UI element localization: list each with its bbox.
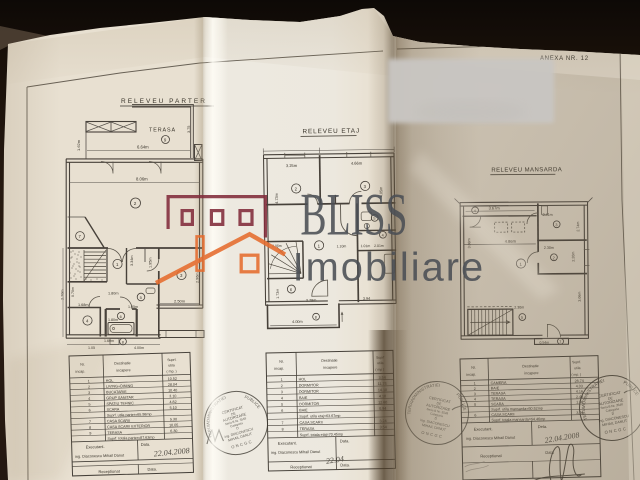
- svg-text:2: 2: [281, 384, 283, 388]
- svg-text:Data.: Data.: [340, 438, 350, 443]
- svg-text:3.34m: 3.34m: [130, 255, 134, 266]
- svg-text:5: 5: [281, 403, 283, 407]
- svg-text:Executant.: Executant.: [86, 444, 105, 450]
- svg-text:DORMITOR: DORMITOR: [299, 402, 319, 406]
- svg-text:10.05: 10.05: [169, 423, 178, 427]
- svg-text:0.70m: 0.70m: [71, 287, 75, 297]
- svg-text:LIVING+DINING: LIVING+DINING: [106, 384, 133, 389]
- svg-text:4: 4: [281, 396, 283, 400]
- svg-text:8: 8: [282, 427, 284, 431]
- svg-text:6: 6: [120, 315, 122, 319]
- svg-text:10.40: 10.40: [168, 388, 177, 392]
- svg-text:1.62m: 1.62m: [76, 139, 81, 151]
- svg-text:3.10: 3.10: [169, 394, 176, 398]
- svg-text:4.00m: 4.00m: [292, 320, 303, 324]
- svg-text:GRUP SANITAR: GRUP SANITAR: [106, 395, 134, 400]
- svg-text:TERASA: TERASA: [149, 128, 176, 134]
- svg-text:DORMITOR: DORMITOR: [299, 389, 319, 393]
- svg-text:BAIE: BAIE: [299, 408, 308, 412]
- svg-text:1.95m: 1.95m: [149, 257, 153, 268]
- svg-text:BAIE: BAIE: [299, 396, 308, 400]
- svg-text:SCARA: SCARA: [107, 408, 120, 412]
- svg-text:Suprf. utila etaj=63.67mp: Suprf. utila etaj=63.67mp: [299, 414, 340, 419]
- svg-text:2: 2: [134, 201, 137, 206]
- svg-text:1.80m: 1.80m: [108, 318, 118, 322]
- svg-text:incapere: incapere: [116, 368, 130, 372]
- svg-text:TERASA: TERASA: [107, 431, 122, 435]
- svg-text:2.50m: 2.50m: [174, 298, 186, 303]
- svg-text:8: 8: [122, 340, 124, 344]
- svg-text:CASA SCARII: CASA SCARII: [299, 420, 322, 424]
- svg-text:9: 9: [89, 432, 91, 436]
- svg-text:10.52: 10.52: [168, 377, 177, 381]
- svg-text:3.75: 3.75: [187, 126, 191, 133]
- svg-text:1.68m: 1.68m: [78, 303, 89, 307]
- svg-text:6.30: 6.30: [170, 429, 177, 433]
- svg-text:HOL: HOL: [299, 377, 307, 381]
- svg-text:Data.: Data.: [147, 466, 157, 471]
- svg-text:Receptionat: Receptionat: [290, 464, 312, 469]
- svg-text:Destinatie: Destinatie: [321, 359, 337, 363]
- svg-text:6: 6: [89, 408, 91, 412]
- svg-text:4.00m: 4.00m: [134, 346, 144, 350]
- svg-text:8.06m: 8.06m: [136, 177, 148, 182]
- svg-text:incap.: incap.: [274, 367, 284, 371]
- svg-text:Data.: Data.: [141, 442, 151, 447]
- svg-text:CASA SCARII: CASA SCARII: [107, 419, 130, 424]
- svg-text:Data.: Data.: [340, 462, 350, 467]
- svg-text:3.25m: 3.25m: [286, 163, 298, 168]
- svg-text:7: 7: [281, 421, 283, 425]
- svg-text:2.70m: 2.70m: [61, 289, 65, 300]
- svg-text:1.73m: 1.73m: [276, 289, 280, 299]
- svg-text:28.04: 28.04: [168, 383, 177, 387]
- svg-text:TERASA: TERASA: [300, 427, 315, 431]
- svg-text:DORMITOR: DORMITOR: [299, 383, 319, 387]
- svg-text:Destinatie: Destinatie: [114, 361, 131, 365]
- svg-text:( mp. ): ( mp. ): [166, 369, 176, 373]
- svg-text:HOL: HOL: [106, 379, 114, 383]
- svg-text:7: 7: [89, 420, 91, 424]
- svg-text:utila: utila: [168, 363, 175, 367]
- svg-text:BLISS: BLISS: [300, 182, 407, 248]
- svg-text:Receptionat: Receptionat: [98, 469, 120, 475]
- svg-text:6.64m: 6.64m: [137, 145, 149, 150]
- svg-text:8: 8: [315, 316, 317, 320]
- svg-text:3: 3: [281, 390, 283, 394]
- svg-text:Nr.: Nr.: [279, 360, 284, 364]
- svg-text:Suprf.: Suprf.: [167, 358, 176, 362]
- svg-text:1: 1: [281, 378, 283, 382]
- svg-text:8: 8: [89, 426, 91, 430]
- svg-text:Executant.: Executant.: [278, 440, 297, 445]
- svg-text:3.78m: 3.78m: [306, 298, 317, 302]
- svg-text:4.82: 4.82: [169, 400, 176, 404]
- svg-text:Imobiliare: Imobiliare: [293, 246, 486, 290]
- svg-text:1.80m: 1.80m: [108, 292, 119, 296]
- svg-text:4.73m: 4.73m: [275, 193, 279, 204]
- svg-text:RELEVEU ETAJ: RELEVEU ETAJ: [302, 128, 360, 136]
- svg-text:5.30: 5.30: [170, 417, 177, 421]
- svg-text:BUCATARIE: BUCATARIE: [106, 390, 127, 395]
- svg-text:6: 6: [281, 409, 283, 413]
- svg-text:incapere: incapere: [323, 366, 337, 370]
- svg-text:SPATIU TEHNIC: SPATIU TEHNIC: [106, 401, 134, 406]
- svg-text:4.66m: 4.66m: [351, 161, 363, 166]
- svg-text:5.10: 5.10: [170, 406, 177, 410]
